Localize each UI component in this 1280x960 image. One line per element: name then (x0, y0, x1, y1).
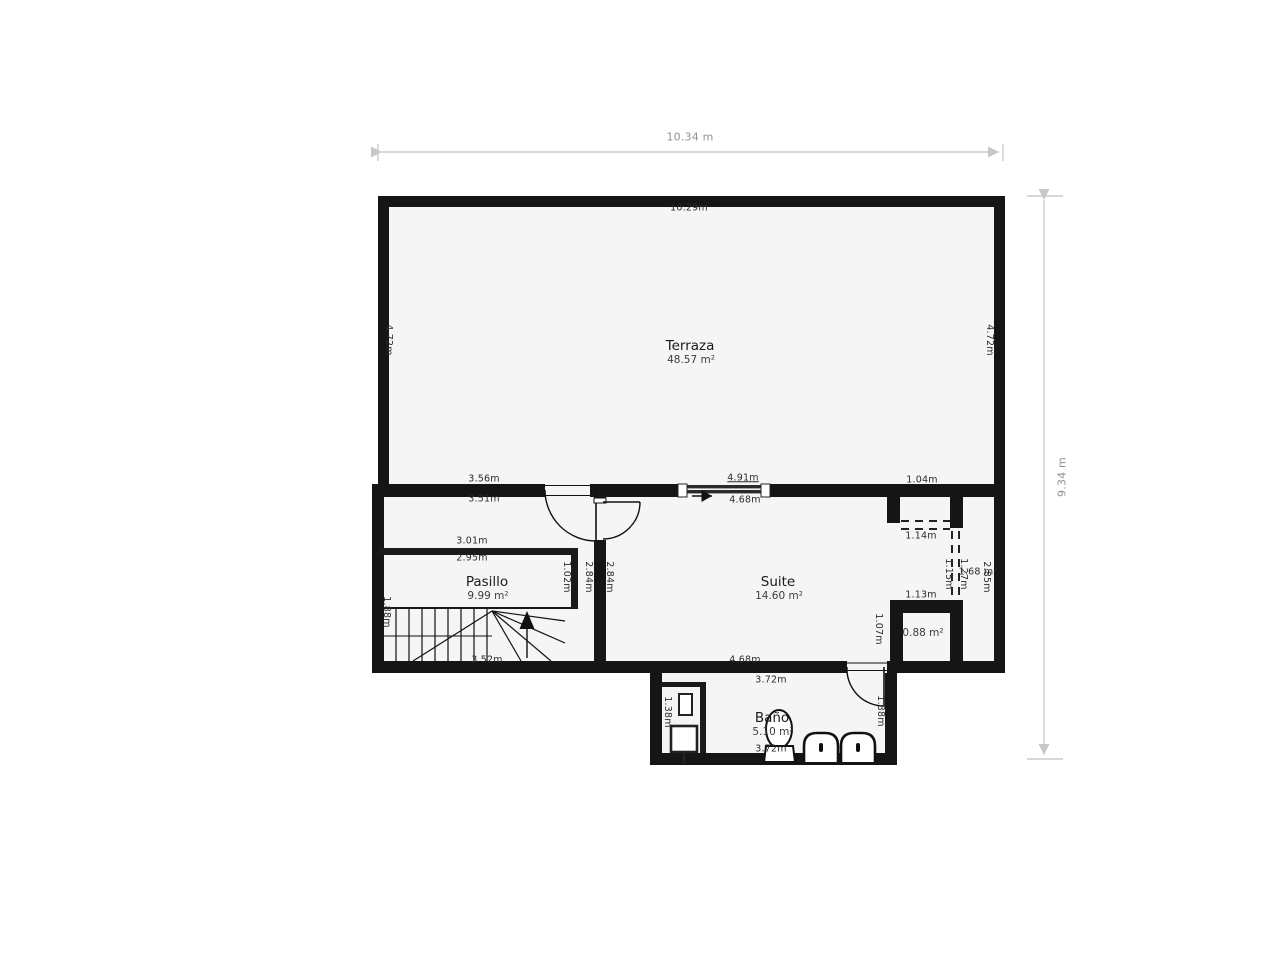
dimension-label: 2.85m (981, 561, 991, 592)
room-area-label: 14.60 m² (755, 590, 803, 602)
dimension-label: 3.56m (468, 474, 499, 484)
dimension-label: 3.01m (456, 536, 487, 546)
room-area-label: 0.88 m² (902, 627, 943, 639)
dimension-label: 1.07m (873, 613, 883, 644)
labels-layer: 10.34 m9.34 m10.29m4.72m4.72m3.56m3.51m4… (0, 0, 1280, 960)
dimension-label: 2.95m (456, 553, 487, 563)
dimension-label: 3.72m (755, 744, 786, 754)
floor-plan: 10.34 m9.34 m10.29m4.72m4.72m3.56m3.51m4… (0, 0, 1280, 960)
overall-dimension-label: 10.34 m (666, 132, 713, 143)
room-name-label: Pasillo (466, 574, 508, 590)
dimension-label: 1.14m (905, 531, 936, 541)
dimension-label: 4.91m (727, 473, 758, 483)
dimension-label: 4.72m (383, 324, 393, 355)
dimension-label: 4.72m (984, 324, 994, 355)
room-name-label: Suite (761, 574, 795, 590)
dimension-label: 1.38m (875, 695, 885, 726)
dimension-label: 2.84m (583, 561, 593, 592)
dimension-label: 1.02m (561, 561, 571, 592)
overall-dimension-label: 9.34 m (1057, 457, 1068, 497)
room-area-label: 48.57 m² (667, 354, 715, 366)
dimension-label: 3.51m (468, 494, 499, 504)
room-area-label: 5.10 m² (752, 726, 793, 738)
dimension-label: 10.29m (670, 203, 708, 213)
dimension-label: 1.13m (905, 590, 936, 600)
room-name-label: Baño (755, 710, 789, 726)
dimension-label: 1.15m (943, 558, 953, 589)
dimension-label: 1.38m (662, 696, 672, 727)
dimension-label: 4.68m (729, 655, 760, 665)
room-name-label: Terraza (666, 338, 715, 354)
dimension-label: 1.04m (906, 475, 937, 485)
dimension-label: 1.88m (381, 596, 391, 627)
room-area-label: 9.99 m² (467, 590, 508, 602)
dimension-label: 3.52m (471, 655, 502, 665)
dimension-label: 3.72m (755, 675, 786, 685)
dimension-label: 2.84m (604, 561, 614, 592)
dimension-label: 4.68m (729, 495, 760, 505)
